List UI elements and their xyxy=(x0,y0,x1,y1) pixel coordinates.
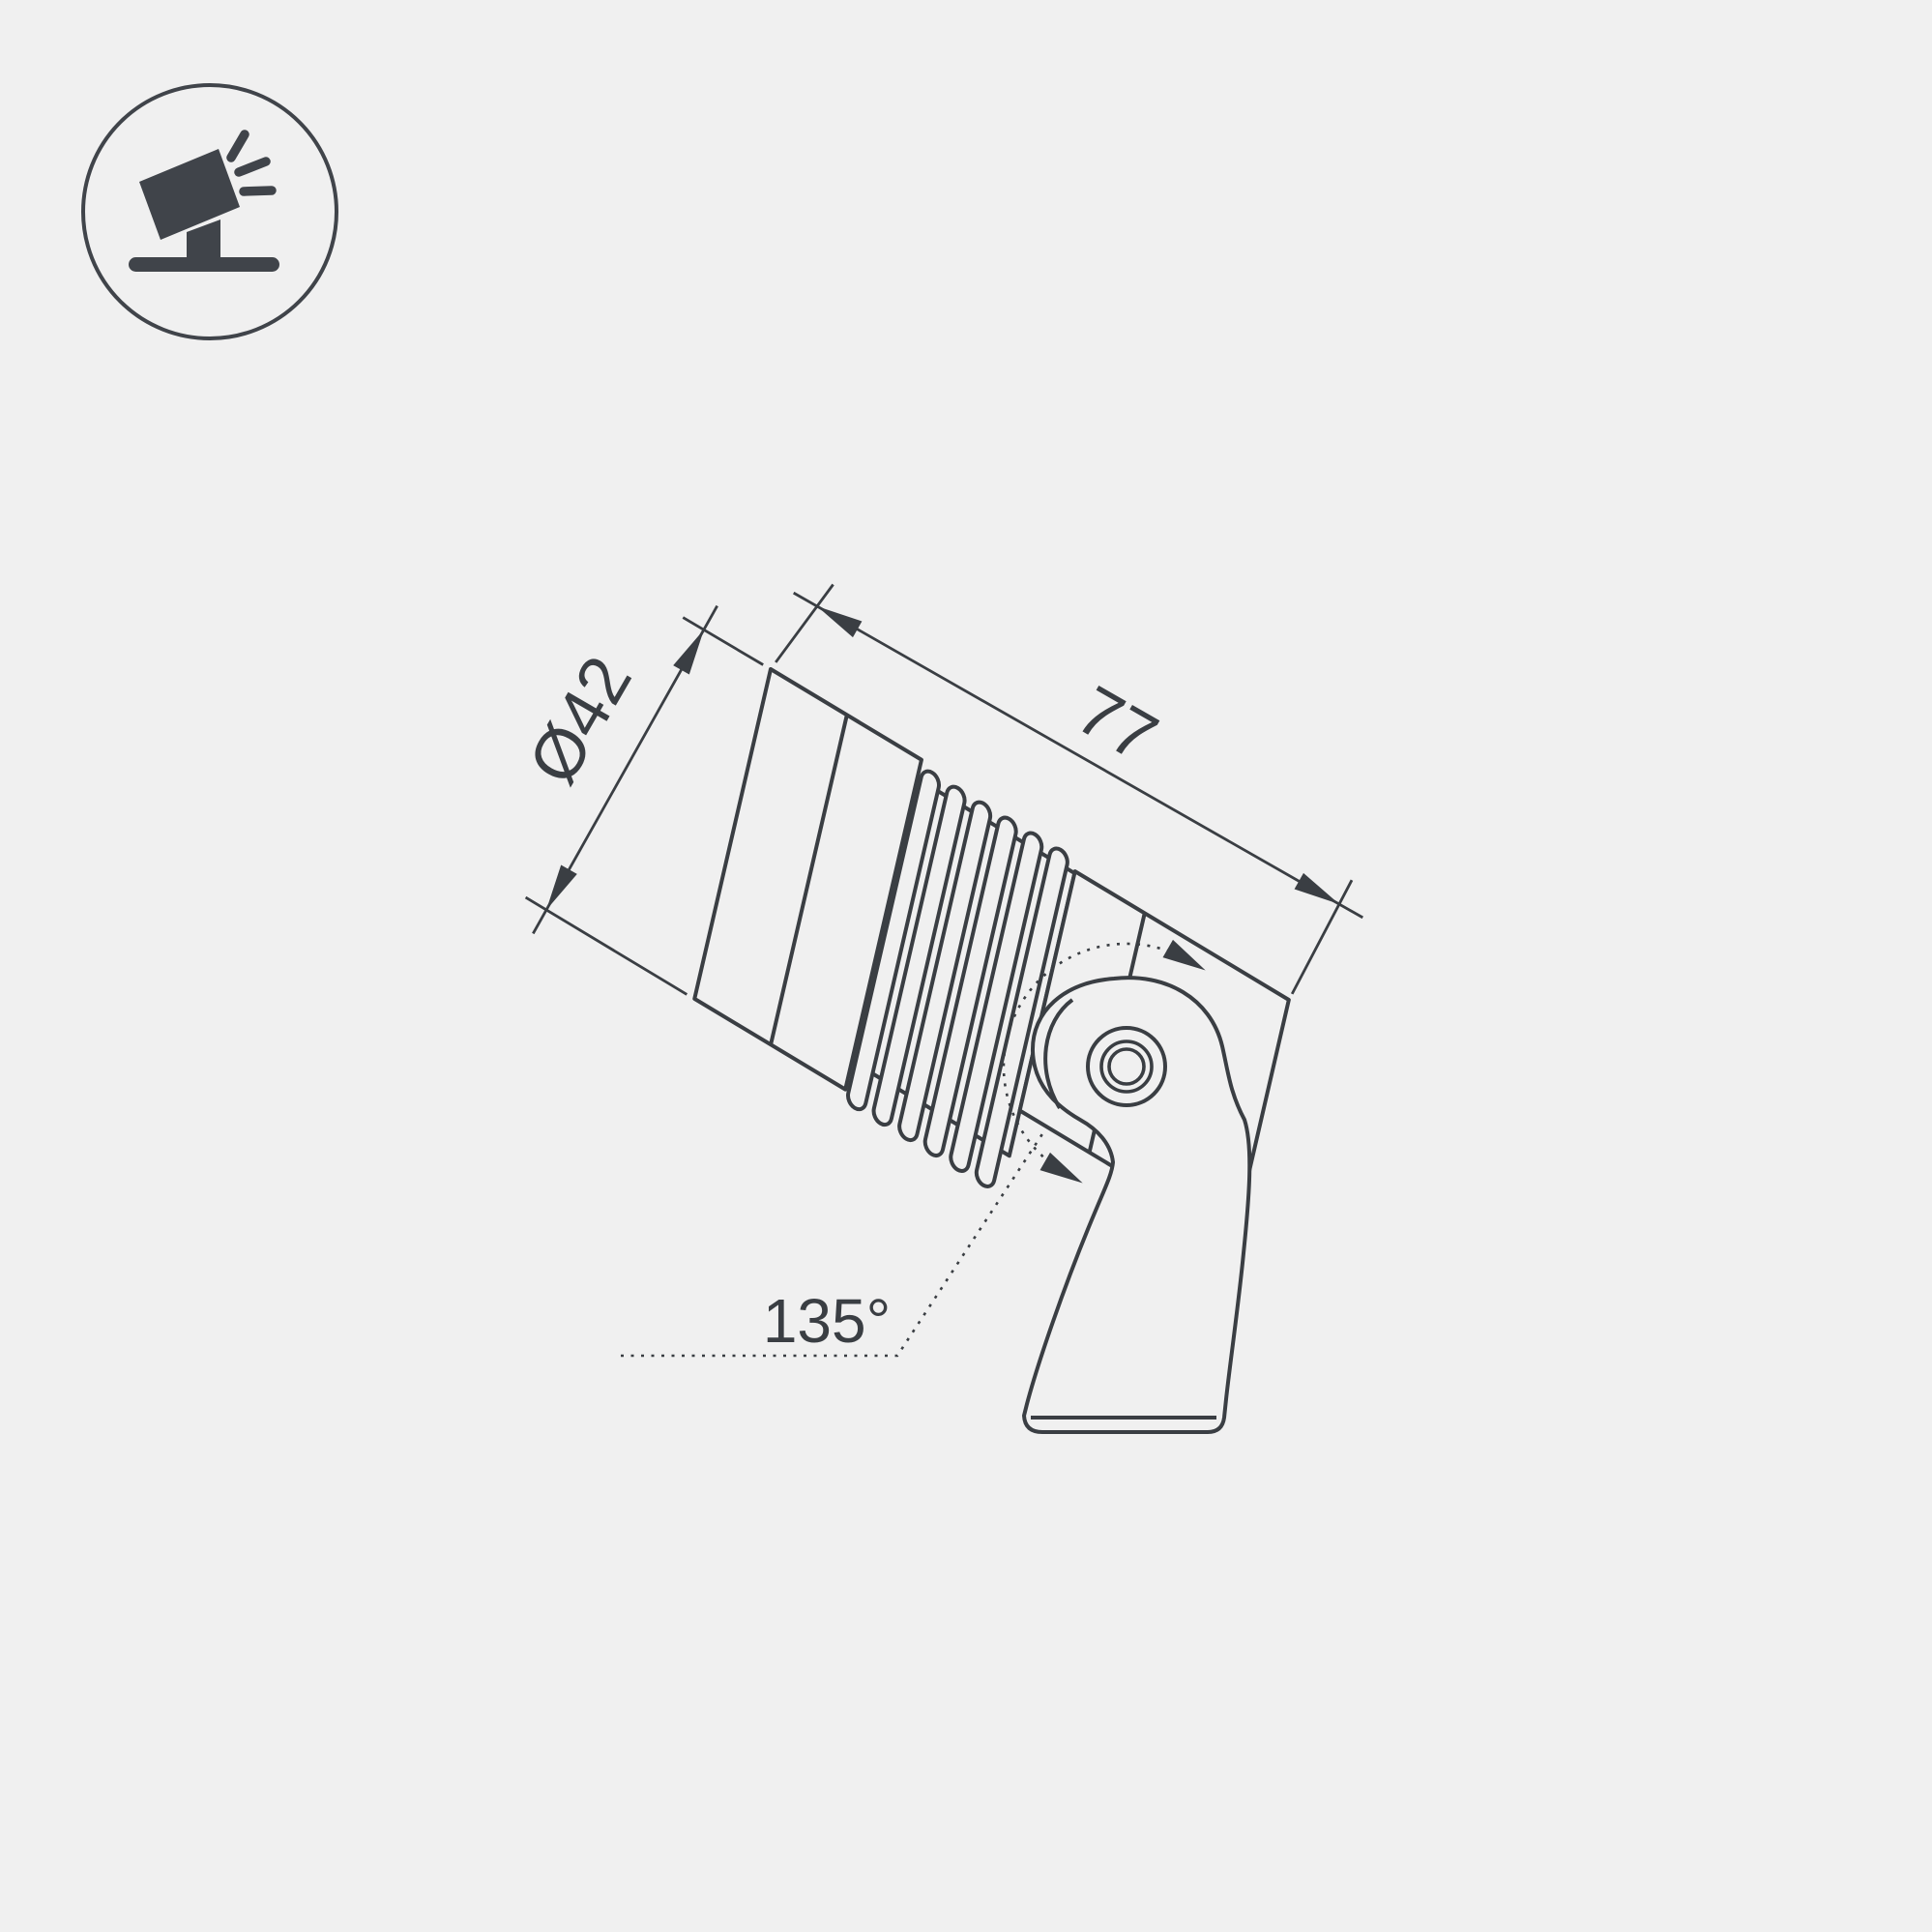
light-ray-icon xyxy=(231,134,245,158)
dim-arrowhead xyxy=(673,629,704,675)
arc-arrowhead-bottom xyxy=(1040,1153,1083,1184)
light-ray-icon xyxy=(239,161,266,172)
dim-arrowhead xyxy=(546,865,577,911)
dim-arrowhead xyxy=(1295,873,1339,904)
light-ray-icon xyxy=(244,190,272,191)
diagram-page: Ø42 77 135° xyxy=(0,0,1932,1932)
extension-line xyxy=(526,897,688,994)
dim-arrowhead xyxy=(817,606,862,637)
dimension-drawing: Ø42 77 135° xyxy=(0,0,1932,1932)
mount-bracket xyxy=(1024,978,1249,1432)
lamp-head-icon xyxy=(139,149,240,240)
ground-bar-icon xyxy=(129,257,279,272)
dim-angle-label: 135° xyxy=(763,1286,891,1356)
spotlight-icon xyxy=(83,85,337,338)
extension-line xyxy=(776,585,833,662)
dim-length-label: 77 xyxy=(1064,672,1169,777)
dim-diameter-label: Ø42 xyxy=(514,644,647,797)
bracket-outline xyxy=(1024,978,1249,1432)
